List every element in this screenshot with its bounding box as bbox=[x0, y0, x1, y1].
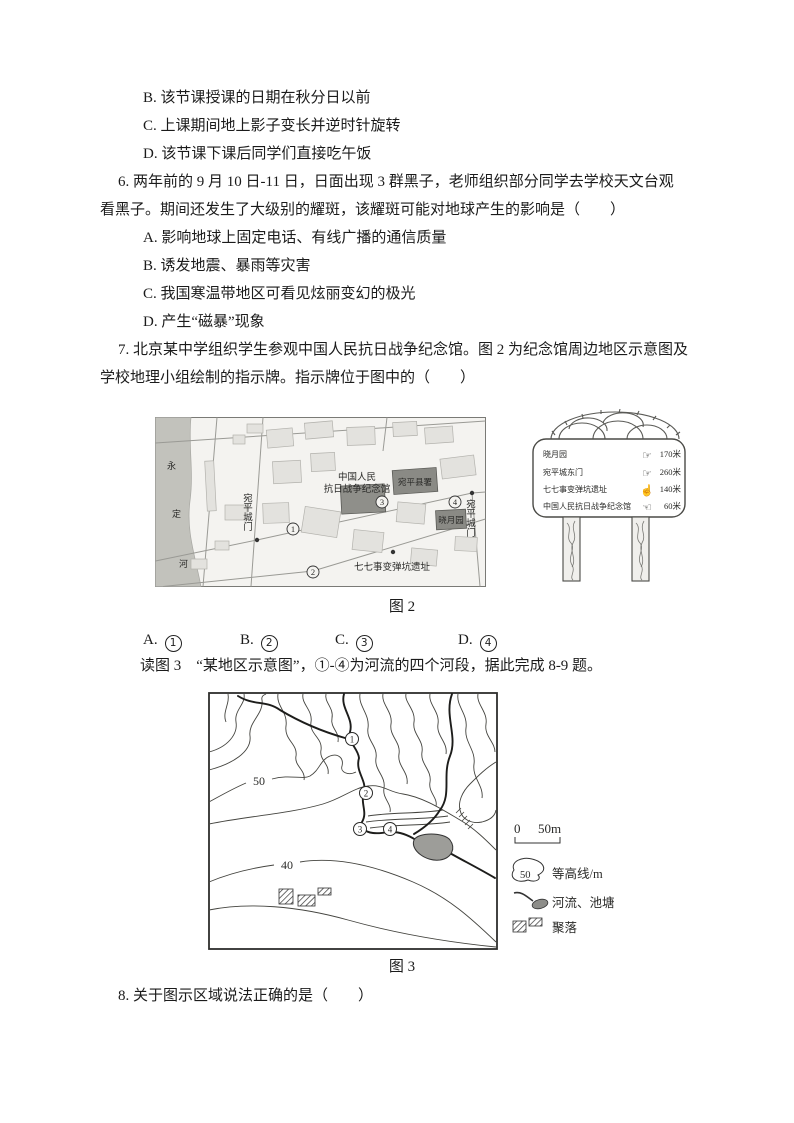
map-marker-2-num: 2 bbox=[311, 567, 315, 577]
sign-row4-distance: 60米 bbox=[664, 501, 682, 511]
crater-site-dot bbox=[391, 550, 395, 554]
map-marker-3: 3 bbox=[376, 496, 388, 508]
river-marker-1-num: 1 bbox=[350, 735, 355, 745]
q6-option-b: B. 诱发地震、暴雨等灾害 bbox=[100, 252, 704, 280]
memorial-label-line1: 中国人民 bbox=[338, 471, 376, 483]
figure2: 永 定 河 中国人民 抗日战争纪念馆 宛平县署 晓月园 宛平城门 宛平城门 七七… bbox=[155, 409, 700, 591]
q6-stem-line2: 看黑子。期间还发生了大级别的耀斑，该耀斑可能对地球产生的影响是（ ） bbox=[100, 196, 704, 224]
river-pond-legend-label: 河流、池塘 bbox=[552, 895, 615, 910]
sign-row3-name: 七七事变弹坑遗址 bbox=[543, 484, 607, 494]
map-marker-4: 4 bbox=[449, 496, 461, 508]
map-marker-2: 2 bbox=[307, 566, 319, 578]
settlement-symbol bbox=[513, 918, 542, 932]
map-marker-1-num: 1 bbox=[291, 524, 295, 534]
crater-site-label: 七七事变弹坑遗址 bbox=[354, 561, 431, 573]
signpost-posts bbox=[563, 517, 649, 581]
pointing-hand-left-icon: ☜ bbox=[642, 502, 652, 514]
contour-symbol-value: 50 bbox=[520, 870, 531, 881]
circled-1: 1 bbox=[165, 635, 182, 652]
river-marker-2: 2 bbox=[360, 787, 373, 800]
circled-2: 2 bbox=[261, 635, 278, 652]
contour-legend-label: 等高线/m bbox=[552, 866, 603, 881]
sign-row1-distance: 170米 bbox=[660, 449, 682, 459]
river-marker-3: 3 bbox=[354, 823, 367, 836]
page-content: B. 该节课授课的日期在秋分日以前 C. 上课期间地上影子变长并逆时针旋转 D.… bbox=[100, 84, 704, 1010]
q6-option-c: C. 我国寒温带地区可看见炫丽变幻的极光 bbox=[100, 280, 704, 308]
q7-answer-d: D.4 bbox=[458, 628, 497, 652]
xiaoyue-label: 晓月园 bbox=[438, 515, 464, 525]
scale-zero: 0 bbox=[514, 821, 521, 836]
river-char-3: 河 bbox=[179, 558, 188, 569]
q7-answer-c-label: C. bbox=[335, 632, 349, 648]
memorial-label-line2: 抗日战争纪念馆 bbox=[324, 483, 391, 495]
gate-right-dot bbox=[470, 491, 474, 495]
river-marker-4-num: 4 bbox=[388, 825, 393, 835]
river-marker-3-num: 3 bbox=[358, 825, 363, 835]
q7-answers: A.1 B.2 C.3 D.4 bbox=[100, 628, 704, 652]
pointing-hand-up-icon: ☝ bbox=[640, 483, 654, 497]
circled-4: 4 bbox=[480, 635, 497, 652]
sign-row4-name: 中国人民抗日战争纪念馆 bbox=[543, 501, 631, 511]
gate-right-label: 宛平城门 bbox=[464, 498, 476, 538]
exam-page: B. 该节课授课的日期在秋分日以前 C. 上课期间地上影子变长并逆时针旋转 D.… bbox=[0, 0, 794, 1123]
sign-row3-distance: 140米 bbox=[660, 484, 682, 494]
q5-option-b: B. 该节课授课的日期在秋分日以前 bbox=[100, 84, 704, 112]
q7-answer-b: B.2 bbox=[240, 628, 278, 652]
signpost: 晓月园 ☞ 170米 宛平城东门 ☞ 260米 七七事变弹坑遗址 ☝ 140米 … bbox=[533, 409, 685, 581]
signpost-canopy bbox=[551, 409, 680, 439]
contour-map-frame bbox=[209, 693, 497, 949]
pointing-hand-right-icon: ☞ bbox=[642, 468, 652, 480]
gate-left-label: 宛平城门 bbox=[241, 492, 253, 532]
fig3-intro: 读图 3 “某地区示意图”，①-④为河流的四个河段，据此完成 8-9 题。 bbox=[100, 652, 704, 680]
figure2-caption: 图 2 bbox=[100, 596, 704, 618]
q7-answer-d-label: D. bbox=[458, 632, 473, 648]
q7-answer-c: C.3 bbox=[335, 628, 373, 652]
pointing-hand-right-icon: ☞ bbox=[642, 450, 652, 462]
q7-stem-line2: 学校地理小组绘制的指示牌。指示牌位于图中的（ ） bbox=[100, 364, 704, 392]
figure3: 50 40 bbox=[208, 692, 653, 956]
river-marker-1: 1 bbox=[346, 733, 359, 746]
figure3-caption: 图 3 bbox=[100, 956, 704, 978]
q7-answer-a-label: A. bbox=[143, 632, 158, 648]
pond-symbol bbox=[531, 898, 549, 911]
q7-answer-a: A.1 bbox=[143, 628, 182, 652]
q8-stem: 8. 关于图示区域说法正确的是（ ） bbox=[100, 982, 704, 1010]
river-char-2: 定 bbox=[172, 508, 181, 519]
contour-label-50: 50 bbox=[253, 774, 265, 788]
sign-row2-name: 宛平城东门 bbox=[543, 467, 583, 477]
q6-stem-line1: 6. 两年前的 9 月 10 日-11 日，日面出现 3 群黑子，老师组织部分同… bbox=[100, 168, 704, 196]
q7-answer-b-label: B. bbox=[240, 632, 254, 648]
gate-left-dot bbox=[255, 538, 259, 542]
sign-row1-name: 晓月园 bbox=[543, 449, 567, 459]
map-marker-3-num: 3 bbox=[380, 497, 384, 507]
q5-option-d: D. 该节课下课后同学们直接吃午饭 bbox=[100, 140, 704, 168]
river-marker-4: 4 bbox=[384, 823, 397, 836]
settlement-legend-label: 聚落 bbox=[552, 921, 578, 935]
scale-end: 50m bbox=[538, 821, 561, 836]
q6-option-d: D. 产生“磁暴”现象 bbox=[100, 308, 704, 336]
sign-row2-distance: 260米 bbox=[660, 467, 682, 477]
q6-option-a: A. 影响地球上固定电话、有线广播的通信质量 bbox=[100, 224, 704, 252]
figure2-svg: 永 定 河 中国人民 抗日战争纪念馆 宛平县署 晓月园 宛平城门 宛平城门 七七… bbox=[155, 409, 700, 591]
map-marker-1: 1 bbox=[287, 523, 299, 535]
river-symbol bbox=[514, 893, 533, 901]
river-char-1: 永 bbox=[167, 460, 176, 471]
legend: 0 50m 50 等高线/m 河流、池塘 聚落 bbox=[512, 821, 614, 935]
river-marker-2-num: 2 bbox=[364, 789, 369, 799]
circled-3: 3 bbox=[356, 635, 373, 652]
q7-stem-line1: 7. 北京某中学组织学生参观中国人民抗日战争纪念馆。图 2 为纪念馆周边地区示意… bbox=[100, 336, 704, 364]
q5-option-c: C. 上课期间地上影子变长并逆时针旋转 bbox=[100, 112, 704, 140]
figure3-svg: 50 40 bbox=[208, 692, 653, 956]
scale-bar bbox=[515, 837, 560, 843]
contour-label-40: 40 bbox=[281, 858, 293, 872]
county-office-label: 宛平县署 bbox=[398, 477, 433, 487]
